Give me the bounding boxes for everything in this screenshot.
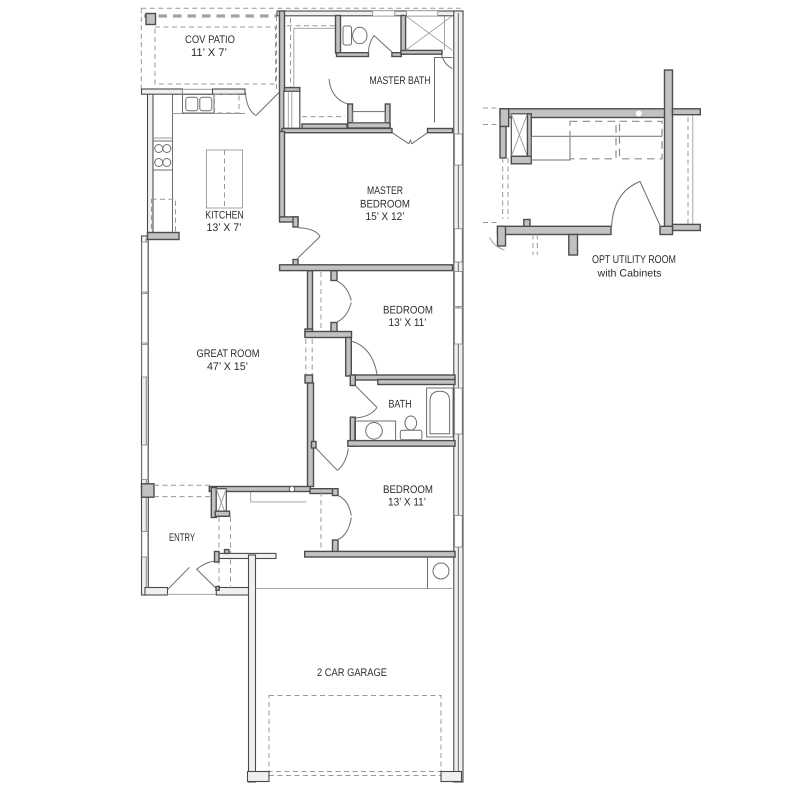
svg-text:15’ X 12’: 15’ X 12’ [366,211,405,223]
svg-text:with Cabinets: with Cabinets [596,268,661,280]
svg-text:COV PATIO: COV PATIO [185,34,235,46]
svg-text:13’ X 11’: 13’ X 11’ [388,497,426,509]
svg-text:BEDROOM: BEDROOM [360,199,410,211]
svg-text:KITCHEN: KITCHEN [205,210,244,222]
svg-text:GREAT ROOM: GREAT ROOM [197,348,260,360]
svg-text:BEDROOM: BEDROOM [383,305,433,317]
svg-text:ENTRY: ENTRY [169,532,195,544]
svg-text:2 CAR GARAGE: 2 CAR GARAGE [317,667,387,679]
svg-text:MASTER BATH: MASTER BATH [370,75,431,87]
svg-text:13’ X 7’: 13’ X 7’ [207,222,242,234]
svg-text:OPT UTILITY ROOM: OPT UTILITY ROOM [592,254,676,266]
svg-text:BATH: BATH [389,399,412,411]
svg-text:BEDROOM: BEDROOM [383,484,433,496]
svg-text:47’ X 15’: 47’ X 15’ [207,361,248,373]
svg-text:11’ X 7’: 11’ X 7’ [191,47,227,59]
svg-text:MASTER: MASTER [367,185,403,197]
svg-text:13’ X 11’: 13’ X 11’ [389,317,427,329]
